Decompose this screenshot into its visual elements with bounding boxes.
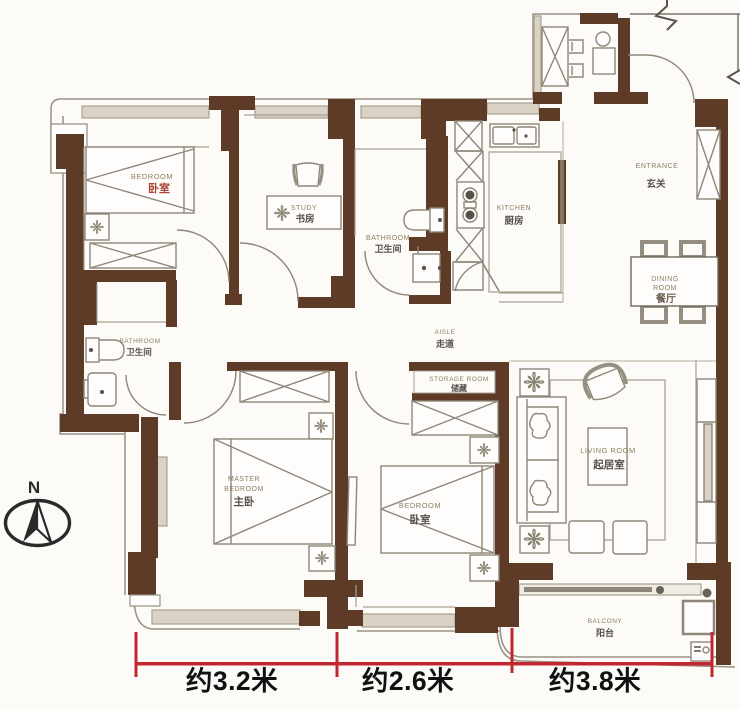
svg-text:厨房: 厨房 xyxy=(504,215,523,227)
svg-text:STUDY: STUDY xyxy=(291,205,317,212)
svg-text:LIVING ROOM: LIVING ROOM xyxy=(580,446,636,455)
svg-text:BALCONY: BALCONY xyxy=(588,618,623,625)
svg-text:BATHROOM: BATHROOM xyxy=(119,338,160,345)
svg-text:DINING: DINING xyxy=(651,276,679,283)
svg-text:ENTRANCE: ENTRANCE xyxy=(636,163,679,170)
svg-text:卫生间: 卫生间 xyxy=(374,243,401,254)
svg-text:BEDROOM: BEDROOM xyxy=(399,501,441,510)
svg-text:ROOM: ROOM xyxy=(653,285,677,292)
svg-text:储藏: 储藏 xyxy=(450,383,467,393)
svg-text:阳台: 阳台 xyxy=(596,627,614,638)
svg-text:N: N xyxy=(28,478,40,497)
svg-text:书房: 书房 xyxy=(295,213,314,225)
svg-text:主卧: 主卧 xyxy=(234,495,255,508)
svg-text:卧室: 卧室 xyxy=(148,181,170,195)
svg-text:约2.6米: 约2.6米 xyxy=(362,666,454,696)
svg-text:走道: 走道 xyxy=(435,338,454,349)
svg-text:STORAGE ROOM: STORAGE ROOM xyxy=(429,376,489,383)
svg-text:卫生间: 卫生间 xyxy=(126,347,152,357)
svg-text:玄关: 玄关 xyxy=(646,178,666,190)
svg-text:MASTER: MASTER xyxy=(228,476,260,483)
svg-text:餐厅: 餐厅 xyxy=(655,292,676,305)
svg-text:BEDROOM: BEDROOM xyxy=(131,172,173,181)
svg-text:卧室: 卧室 xyxy=(410,513,431,526)
svg-text:约3.8米: 约3.8米 xyxy=(549,666,641,696)
svg-text:起居室: 起居室 xyxy=(592,458,625,471)
svg-text:BEDROOM: BEDROOM xyxy=(224,486,264,493)
svg-text:约3.2米: 约3.2米 xyxy=(186,666,278,696)
svg-text:AISLE: AISLE xyxy=(435,329,456,336)
svg-text:BATHROOM: BATHROOM xyxy=(366,235,410,242)
svg-text:KITCHEN: KITCHEN xyxy=(497,205,531,212)
